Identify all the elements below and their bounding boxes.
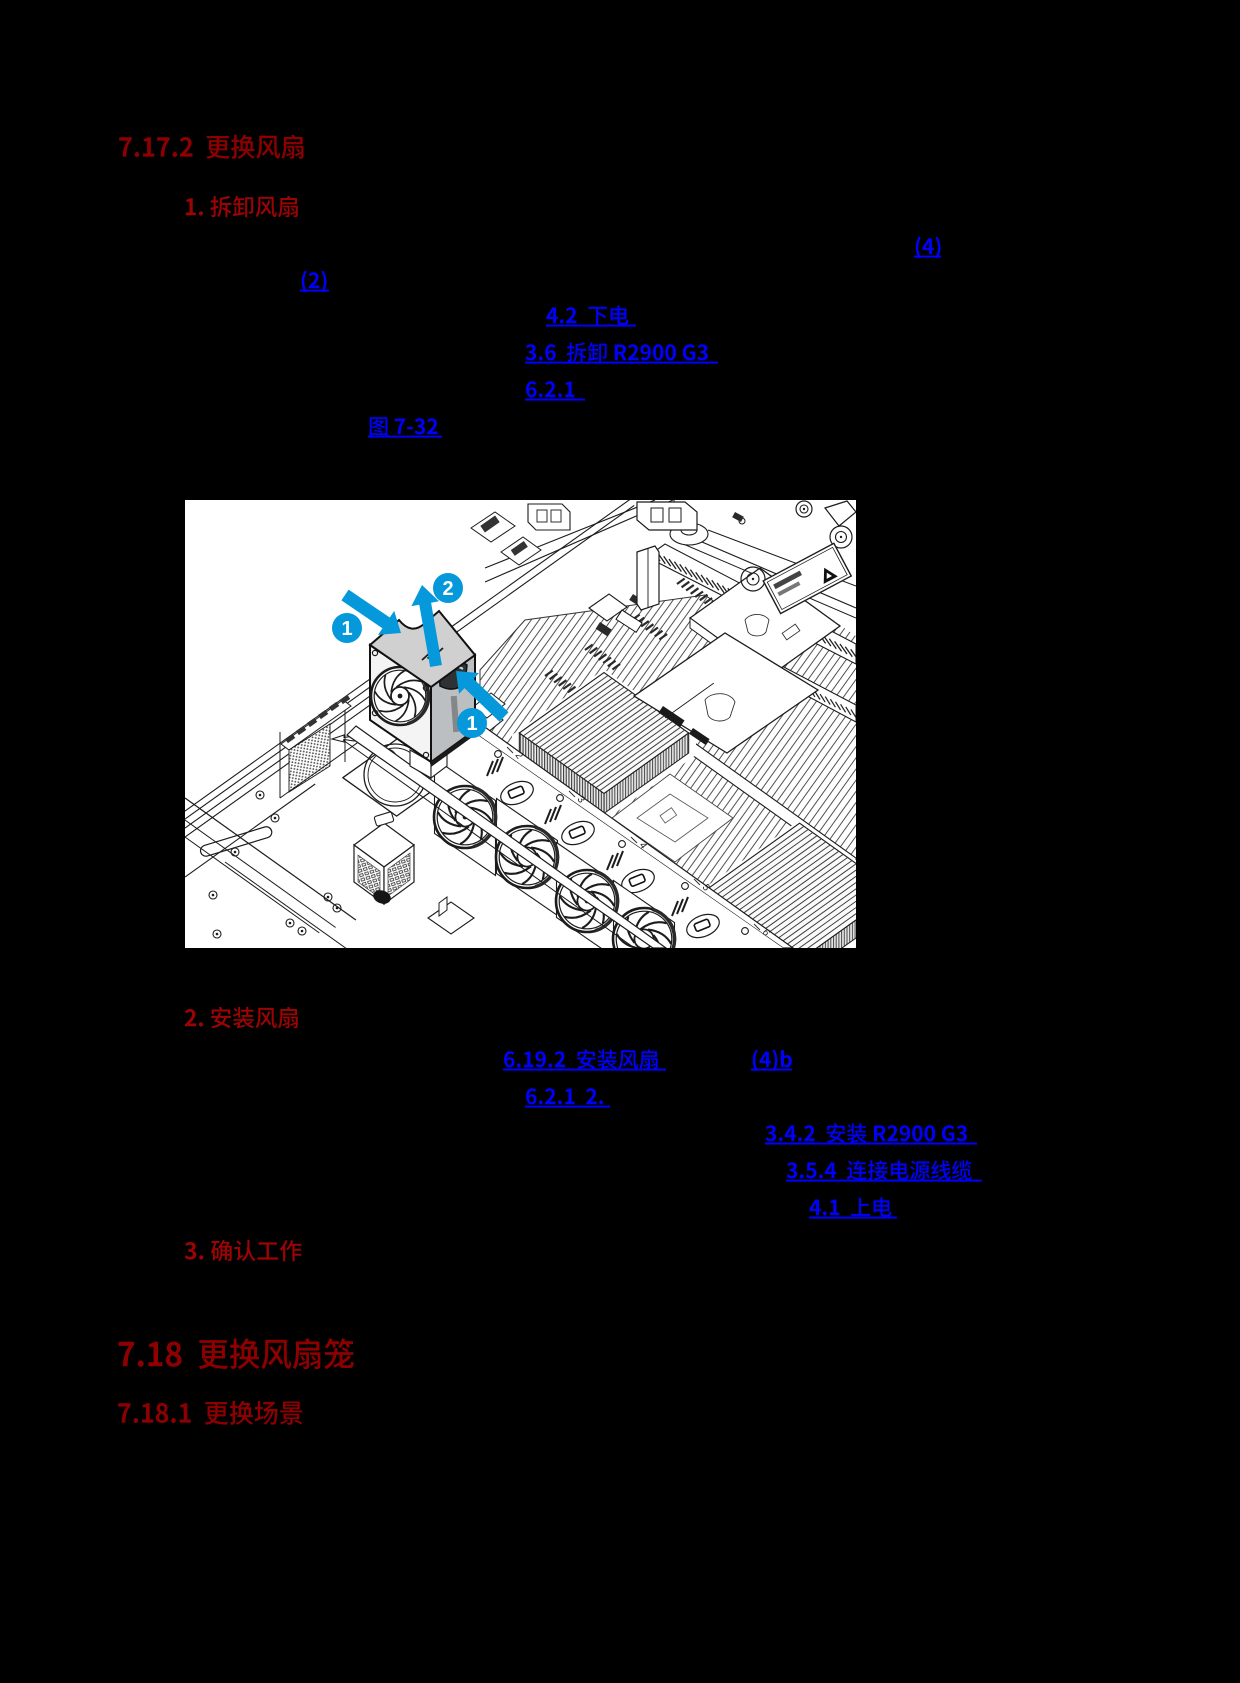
svg-text:2: 2	[442, 578, 453, 600]
svg-text:1: 1	[341, 618, 352, 640]
svg-text:1: 1	[466, 713, 477, 735]
